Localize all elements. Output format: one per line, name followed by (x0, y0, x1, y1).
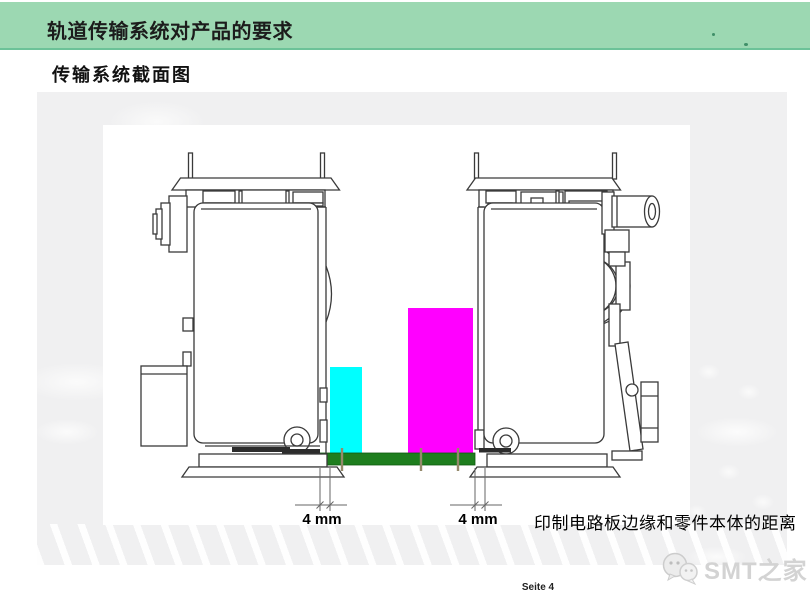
page-title: 轨道传输系统对产品的要求 (47, 15, 293, 44)
right-fixture-drawing (467, 153, 660, 477)
left-fixture-drawing (141, 153, 344, 477)
page-number: Seite 4 (493, 582, 583, 593)
diagram-caption: 印制电路板边缘和零件本体的距离 (534, 509, 797, 534)
diagram-subtitle: 传输系统截面图 (52, 61, 192, 87)
cross-section-diagram (103, 125, 690, 525)
texture-speck (744, 43, 748, 46)
component-bar-small (330, 367, 362, 453)
watermark: SMT之家 (662, 551, 808, 586)
watermark-text: SMT之家 (704, 551, 808, 586)
component-bar-large (408, 308, 473, 453)
dimension-right-label: 4 mm (446, 511, 510, 528)
wechat-icon (662, 552, 700, 586)
slide: 轨道传输系统对产品的要求 传输系统截面图 (0, 0, 810, 605)
dimension-left-label: 4 mm (290, 511, 354, 528)
texture-speck (712, 33, 715, 36)
